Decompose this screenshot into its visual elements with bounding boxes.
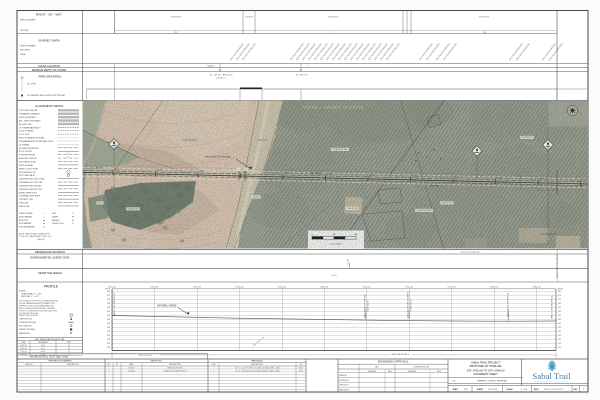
svg-text:WL-A1: WL-A1	[347, 259, 350, 265]
svg-text:315: 315	[558, 343, 561, 345]
svg-text:STREAM/WATERBODY/WETLAND LIMIT: STREAM/WATERBODY/WETLAND LIMITS	[19, 140, 54, 143]
svg-text:CHECKED BY: CHECKED BY	[339, 385, 349, 387]
svg-text:ENGINEERING APPROVALS: ENGINEERING APPROVALS	[378, 361, 409, 364]
svg-text:WELL: WELL	[52, 213, 57, 215]
svg-text:340: 340	[107, 323, 110, 325]
svg-text:1" = 200': 1" = 200'	[520, 389, 528, 391]
svg-text:— X —: — X —	[66, 153, 71, 155]
svg-text:PIPELINE MILEPOST: PIPELINE MILEPOST	[19, 172, 37, 174]
svg-text:6740+00: 6740+00	[20, 351, 26, 353]
svg-text:PROFILE: PROFILE	[44, 285, 59, 289]
svg-text:6720+00: 6720+00	[151, 286, 160, 288]
svg-text:PIPELINE CENTERLINE: PIPELINE CENTERLINE	[19, 148, 39, 150]
svg-text:STA. 6744+60: STA. 6744+60	[366, 300, 369, 311]
svg-text:MINIMUM DEPTH OF COVER: MINIMUM DEPTH OF COVER	[32, 69, 66, 72]
svg-text:330: 330	[558, 331, 561, 333]
svg-text:SHEET: SHEET	[477, 389, 484, 391]
svg-text:320: 320	[107, 339, 110, 341]
svg-text:310: 310	[558, 347, 561, 349]
svg-text:PROPOSED VALVE: PROPOSED VALVE	[19, 174, 36, 177]
svg-text:6735+00: 6735+00	[278, 286, 287, 288]
svg-text:000.0: 000.0	[41, 351, 45, 353]
svg-text:360: 360	[558, 307, 561, 309]
svg-text:STA. 6715+00.00: STA. 6715+00.00	[138, 354, 151, 357]
svg-text:TEMP. WORKSPACE: TEMP. WORKSPACE	[19, 116, 37, 119]
svg-text:ELEV: ELEV	[558, 288, 564, 290]
svg-text:PROPOSED 36" PIPELINE: PROPOSED 36" PIPELINE	[470, 364, 502, 368]
svg-text:EDGE OF WATER: EDGE OF WATER	[19, 130, 34, 133]
svg-text:330: 330	[107, 331, 110, 333]
svg-text:CASED CROSSING: CASED CROSSING	[19, 328, 36, 331]
svg-text:VERTICAL: 1" = 100': VERTICAL: 1" = 100'	[21, 295, 39, 298]
svg-text:REISSUED FOR BID: REISSUED FOR BID	[167, 368, 183, 370]
svg-text:TO LA. & FL STATE PLANE COORD.: TO LA. & FL STATE PLANE COORD. SYS.	[19, 235, 52, 238]
svg-text:360: 360	[107, 307, 110, 309]
svg-text:DWG.: DWG.	[534, 389, 540, 391]
svg-text:WATERBODY: WATERBODY	[19, 332, 31, 335]
svg-text:DIRT/GRAVEL ROAD: DIRT/GRAVEL ROAD	[19, 161, 37, 164]
svg-text:TEST STATION: TEST STATION	[19, 325, 32, 328]
svg-text:FENCE LINE: FENCE LINE	[19, 206, 30, 208]
svg-text:CONSTRUCTION: CONSTRUCTION	[413, 367, 430, 369]
svg-text:380: 380	[107, 291, 110, 293]
svg-text:370: 370	[107, 299, 110, 301]
svg-text:CLASS 1: CLASS 1	[207, 65, 215, 68]
svg-text:6730+00: 6730+00	[20, 348, 26, 350]
svg-text:36 C PIPE: 36 C PIPE	[27, 84, 37, 86]
svg-text:UNDERGROUND STRUCTURE: UNDERGROUND STRUCTURE	[19, 179, 45, 181]
svg-text:DESCRIPTION: DESCRIPTION	[67, 364, 79, 366]
svg-text:ISSUED FOR CONSTRUCTION: ISSUED FOR CONSTRUCTION	[163, 370, 187, 372]
svg-text:6750+00: 6750+00	[20, 354, 26, 356]
svg-text:PAVED COUNTY ROAD: PAVED COUNTY ROAD	[19, 167, 39, 170]
svg-text:06/14/16: 06/14/16	[128, 370, 134, 372]
svg-text:SABAL TRAIL PROJECT: SABAL TRAIL PROJECT	[471, 360, 500, 364]
svg-text:TREE LINE: TREE LINE	[19, 203, 29, 205]
svg-text:▲: ▲	[43, 226, 45, 229]
svg-text:MATERIALS: MATERIALS	[251, 360, 263, 363]
svg-text:XXXXXXX: XXXXXXX	[171, 17, 182, 19]
svg-text:335: 335	[107, 327, 110, 329]
svg-text:1: 1	[306, 66, 307, 68]
svg-text:ELEV: ELEV	[105, 288, 111, 290]
svg-text:6725+00: 6725+00	[193, 286, 202, 288]
svg-text:325: 325	[107, 335, 110, 337]
svg-text:0.0: 0.0	[68, 348, 70, 350]
svg-text:TREE: TREE	[20, 54, 26, 56]
svg-text:40-PL-DG-00-000-000: 40-PL-DG-00-000-000	[461, 252, 480, 254]
svg-text:6755+00: 6755+00	[448, 286, 457, 288]
svg-text:R.O.W. OFFSET: R.O.W. OFFSET	[19, 151, 33, 153]
svg-text:TRENCH PLUG: TRENCH PLUG	[19, 318, 32, 320]
svg-text:320: 320	[558, 339, 561, 341]
svg-text:EXIST MARKER: EXIST MARKER	[19, 215, 33, 218]
svg-text:6745+00: 6745+00	[363, 286, 372, 288]
svg-text:325: 325	[558, 335, 561, 337]
svg-text:XXXXXXX: XXXXXXX	[479, 17, 490, 19]
svg-text:XXXXXX: XXXXXX	[245, 17, 254, 19]
svg-text:LT/RT: LT/RT	[67, 342, 72, 344]
svg-text:MATCH LINE STA. 6768+00: MATCH LINE STA. 6768+00	[556, 254, 559, 278]
svg-text:6730+00: 6730+00	[235, 286, 244, 288]
svg-text:4807-PL-DG-70-001-136: 4807-PL-DG-70-001-136	[544, 389, 563, 391]
svg-text:FOREIGN PIPELINE: FOREIGN PIPELINE	[19, 155, 36, 157]
svg-text:FIRST (OWNER): FIRST (OWNER)	[20, 19, 36, 21]
svg-text:HYDROSTATIC TEST SECTION: HYDROSTATIC TEST SECTION	[30, 355, 68, 359]
svg-text:BURIED FIBER OPTIC: BURIED FIBER OPTIC	[19, 192, 38, 194]
svg-text:LOC:: LOC:	[452, 381, 457, 383]
svg-text:RIGHT (OWNER): RIGHT (OWNER)	[20, 46, 36, 48]
svg-text:TEST SECTION 4: TEST SECTION 4	[391, 354, 409, 356]
svg-text:350: 350	[107, 315, 110, 317]
svg-text:NO THERMITE WELD SERVICE BY PI: NO THERMITE WELD SERVICE BY PIPELINE	[27, 95, 66, 97]
svg-text:PROPERTY LINE: PROPERTY LINE	[19, 199, 34, 201]
svg-text:R.O.W. LINE: R.O.W. LINE	[19, 134, 30, 136]
svg-text:370: 370	[558, 299, 561, 301]
svg-text:MAILBOX: MAILBOX	[52, 219, 61, 222]
svg-text:REVISIONS: REVISIONS	[150, 361, 162, 363]
svg-text:STA. 6715+00 TO STA. 6768+00: STA. 6715+00 TO STA. 6768+00	[467, 368, 505, 372]
svg-text:0.0: 0.0	[68, 351, 70, 353]
svg-text:SECOND: SECOND	[20, 30, 29, 32]
svg-text:ALIGN. SHEETS SHALL REMAIN TRU: ALIGN. SHEETS SHALL REMAIN TRUE	[19, 233, 50, 236]
svg-text:6760+00: 6760+00	[490, 286, 499, 288]
svg-text:ITEM: ITEM	[212, 364, 216, 366]
svg-text:UT STREAM/WATERBODY: UT STREAM/WATERBODY	[19, 126, 41, 129]
svg-text:UNDERGROUND ELECTRIC: UNDERGROUND ELECTRIC	[19, 189, 43, 191]
svg-text:355: 355	[558, 311, 561, 313]
svg-text:365: 365	[558, 303, 561, 305]
svg-text:345: 345	[558, 319, 561, 321]
svg-text:— X —: — X —	[66, 156, 71, 158]
svg-text:SCALE:: SCALE:	[19, 290, 27, 293]
svg-text:1: 1	[583, 389, 584, 391]
svg-text:STA. 6749+70: STA. 6749+70	[410, 299, 413, 310]
svg-text:UNDERGROUND PIPELINE: UNDERGROUND PIPELINE	[19, 185, 42, 187]
svg-text:RECORDS: RECORDS	[20, 50, 31, 52]
svg-text:05/06/17: 05/06/17	[128, 368, 134, 370]
svg-text:335: 335	[558, 327, 561, 329]
svg-text:■: ■	[43, 223, 44, 225]
svg-text:310: 310	[107, 347, 110, 349]
svg-text:REFERENCE DRAWING: REFERENCE DRAWING	[48, 360, 72, 363]
svg-text:6720+00: 6720+00	[20, 345, 26, 347]
svg-text:MATCH LINE STA. 6768+00: MATCH LINE STA. 6768+00	[551, 296, 554, 319]
svg-text:1: 1	[329, 32, 330, 34]
svg-text:PIPE MATERIAL: PIPE MATERIAL	[38, 75, 61, 79]
svg-text:EXIST. FENCE STA. 6762+00: EXIST. FENCE STA. 6762+00	[507, 293, 510, 317]
svg-text:SURVEY DATA: SURVEY DATA	[38, 39, 60, 43]
svg-text:6740+00: 6740+00	[320, 286, 329, 288]
svg-text:846 LF: 846 LF	[299, 368, 304, 370]
svg-text:RIGHT - OF - WAY: RIGHT - OF - WAY	[36, 13, 62, 17]
svg-text:XXXXXXX: XXXXXXX	[328, 17, 339, 19]
svg-text:WATER: WATER	[52, 215, 59, 218]
svg-text:TREES / SHRUB: TREES / SHRUB	[19, 213, 33, 215]
svg-text:T R A N S M I S S I O N: T R A N S M I S S I O N	[535, 380, 569, 383]
svg-text:ROW MARKER: ROW MARKER	[19, 222, 32, 225]
svg-text:HORIZONTAL: 1" = 200': HORIZONTAL: 1" = 200'	[21, 292, 42, 295]
svg-text:365: 365	[107, 303, 110, 305]
svg-text:ADJACENT PIPELINE: ADJACENT PIPELINE	[19, 157, 37, 160]
svg-text:PIPELINE MARKER: PIPELINE MARKER	[19, 226, 36, 229]
svg-text:36", .429" W.T., API-5L-X70: 36", .429" W.T., API-5L-X70	[209, 74, 232, 77]
svg-text:6765+00: 6765+00	[533, 286, 542, 288]
svg-text:3: 3	[109, 370, 110, 372]
svg-text:380: 380	[558, 291, 561, 293]
svg-text:MATCH LINE STA. 6715+00: MATCH LINE STA. 6715+00	[113, 293, 116, 316]
svg-text:PROPOSED PIPELINE: PROPOSED PIPELINE	[19, 110, 38, 112]
svg-text:UT STREAM: UT STREAM	[19, 143, 30, 146]
svg-text:345: 345	[107, 319, 110, 321]
svg-text:340: 340	[558, 323, 561, 325]
svg-text:ALIGNMENT SHEET: ALIGNMENT SHEET	[473, 372, 498, 376]
svg-text:ADD. TEMP. WORKSPACE: ADD. TEMP. WORKSPACE	[19, 119, 41, 122]
svg-text:ALIGNMENT DETAIL: ALIGNMENT DETAIL	[35, 104, 64, 108]
svg-text:Sabal Trail: Sabal Trail	[532, 371, 571, 381]
svg-text:POWER POLE: POWER POLE	[52, 223, 65, 225]
svg-text:36", .465" W.T.: 36", .465" W.T.	[296, 75, 309, 77]
svg-text:MILE POST: MILE POST	[19, 220, 29, 222]
svg-text:BID: BID	[375, 367, 379, 369]
svg-text:0.465 A.R.O.: 0.465 A.R.O.	[216, 77, 227, 80]
svg-text:DESCRIPTION: DESCRIPTION	[169, 364, 181, 366]
svg-text:DIRECTION OF FLOW: DIRECTION OF FLOW	[19, 315, 38, 317]
svg-text:6715+00: 6715+00	[108, 286, 117, 288]
svg-text:6750+00: 6750+00	[405, 286, 414, 288]
svg-text:ENVIRONMENTAL SURVEY DATA: ENVIRONMENTAL SURVEY DATA	[30, 257, 69, 260]
svg-text:0.0: 0.0	[68, 345, 70, 347]
svg-text:SCALE: SCALE	[506, 388, 513, 391]
svg-text:CLASS LOCATION: CLASS LOCATION	[38, 64, 60, 68]
svg-text:OVERHEAD TELEPHONE: OVERHEAD TELEPHONE	[19, 195, 41, 198]
svg-text:315: 315	[107, 343, 110, 345]
svg-text:0.0: 0.0	[68, 354, 70, 356]
svg-text:NATURAL GRADE: NATURAL GRADE	[157, 304, 177, 307]
svg-text:000.0: 000.0	[41, 345, 45, 347]
svg-text:000.0: 000.0	[41, 348, 45, 350]
svg-text:ACCESS ROAD: ACCESS ROAD	[19, 123, 32, 126]
svg-text:SENSITIVE AREAS: SENSITIVE AREAS	[38, 271, 62, 275]
svg-text:ELEVATION: ELEVATION	[38, 341, 48, 344]
svg-text:(NAD 83): (NAD 83)	[37, 238, 44, 241]
svg-text:375: 375	[558, 295, 561, 297]
svg-text:2017: 2017	[464, 389, 468, 391]
svg-text:375: 375	[107, 295, 110, 297]
svg-text:REFERENCE DRAWING: REFERENCE DRAWING	[35, 250, 65, 254]
svg-text:TERRELL COUNTY, GEORGIA: TERRELL COUNTY, GEORGIA	[477, 380, 507, 383]
svg-text:YEAR: YEAR	[452, 388, 458, 391]
svg-text:PERMANENT EASEMENT: PERMANENT EASEMENT	[19, 113, 41, 116]
svg-text:STA.: STA.	[22, 341, 26, 344]
svg-text:OVERHEAD ELECTRIC LINE: OVERHEAD ELECTRIC LINE	[19, 181, 43, 184]
svg-text:355: 355	[107, 311, 110, 313]
svg-text:S-00-0: S-00-0	[331, 275, 336, 277]
svg-text:ELEV. DATUM: NAVD 88 (GEOID 12: ELEV. DATUM: NAVD 88 (GEOID 12A)	[35, 338, 65, 341]
svg-text:STATE HIGHWAY: STATE HIGHWAY	[19, 164, 34, 167]
svg-text:FOREIGN PIPELINE: FOREIGN PIPELINE	[19, 322, 37, 324]
svg-text:136 OF 486: 136 OF 486	[488, 389, 498, 391]
svg-text:2: 2	[109, 368, 110, 370]
svg-text:DESCRIPTION: DESCRIPTION	[251, 364, 263, 366]
svg-text:FIELD DELINEATED WETLAND: FIELD DELINEATED WETLAND	[19, 137, 45, 140]
svg-text:350: 350	[558, 315, 561, 317]
svg-text:DESIGNED BY: DESIGNED BY	[339, 380, 349, 382]
svg-text:W: W	[72, 216, 74, 218]
svg-text:DWG NO.: DWG NO.	[25, 364, 33, 366]
